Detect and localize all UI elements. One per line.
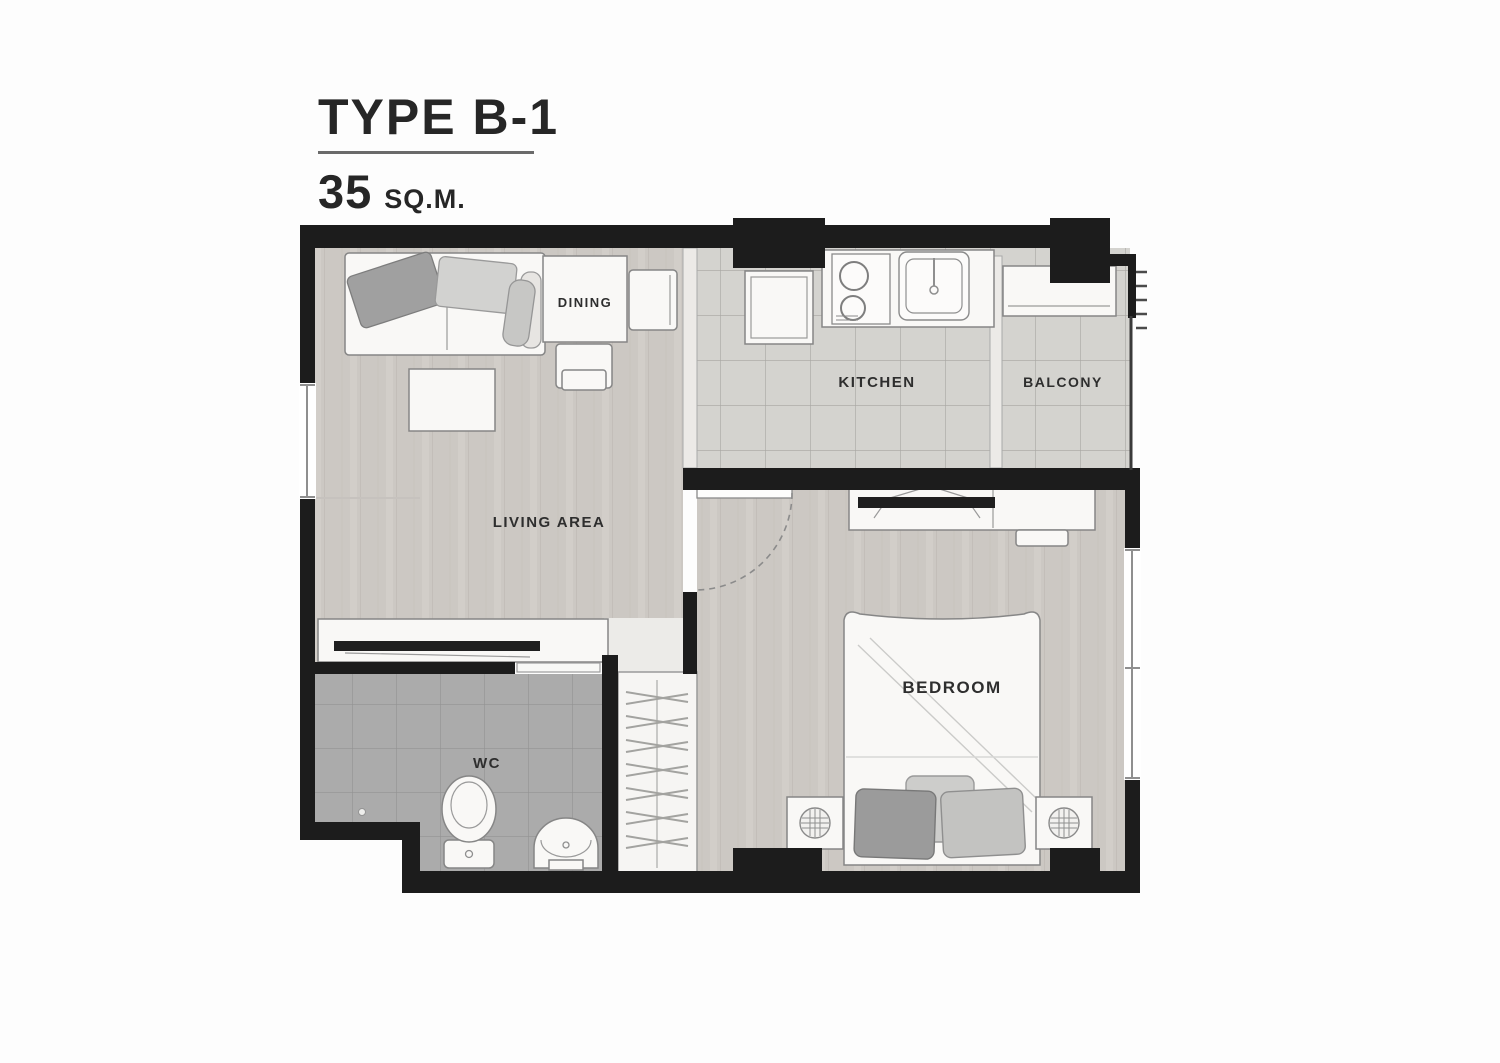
top-column-2 (1050, 218, 1110, 283)
nightstand-left (787, 797, 843, 849)
sofa (345, 251, 545, 355)
floor-plan-page: TYPE B-1 35 SQ.M. (0, 0, 1500, 1063)
sofa-pillow-light (435, 256, 518, 314)
lamp-icon (1049, 808, 1079, 838)
stove-icon (832, 254, 890, 324)
wc-door (517, 663, 600, 672)
wc-label: WC (473, 755, 501, 772)
plan-title-block: TYPE B-1 35 SQ.M. (318, 92, 559, 219)
coffee-table (409, 369, 495, 431)
left-wall-upper (300, 225, 315, 385)
plan-area: 35 SQ.M. (318, 164, 559, 219)
dining-chair-bottom (556, 344, 612, 390)
balcony-rail-post (1128, 254, 1136, 318)
right-wall-lower (1125, 778, 1140, 893)
bedroom-console-drawer (1016, 530, 1068, 546)
lamp-icon (800, 808, 830, 838)
top-wall (300, 225, 1110, 248)
balcony-label: BALCONY (1023, 374, 1103, 390)
dining-label: DINING (558, 295, 613, 310)
living-tv (334, 641, 540, 651)
bed (844, 612, 1040, 865)
closet-wc-wall (602, 655, 618, 893)
kitchen-label: KITCHEN (838, 374, 915, 391)
living-tv-console (318, 619, 608, 662)
bottom-column-2 (1050, 848, 1100, 871)
dining-chair-right (629, 270, 677, 330)
basin-icon (534, 818, 598, 870)
nightstand-right (1036, 797, 1092, 849)
bedroom-window (1124, 548, 1141, 780)
bottom-column-1 (733, 848, 822, 871)
plan-type-title: TYPE B-1 (318, 92, 559, 142)
kitchen-counter (822, 250, 994, 327)
bedroom-label: BEDROOM (902, 678, 1001, 697)
area-unit: SQ.M. (384, 184, 466, 215)
title-underline (318, 151, 534, 154)
bed-pillow-left (854, 789, 936, 860)
living-kitchen-divider (683, 248, 697, 468)
floor-plan-drawing: DINING KITCHEN BALCONY LIVING AREA BEDRO… (0, 0, 1500, 1063)
bedroom-jamb-wall (683, 592, 697, 674)
kitchen-cabinet (745, 271, 813, 344)
sink-icon (899, 252, 969, 320)
bedroom-tv (858, 497, 995, 508)
living-wc-wall (300, 662, 515, 674)
right-wall-upper (1125, 482, 1140, 550)
bed-pillow-right (940, 788, 1025, 858)
left-window (299, 383, 316, 499)
toilet-icon (442, 776, 496, 868)
balcony-louver-icon (1136, 272, 1147, 328)
wardrobe (618, 672, 697, 875)
floor-drain-icon (359, 809, 366, 816)
living-area-label: LIVING AREA (493, 514, 606, 531)
kitchen-bedroom-wall (683, 468, 1140, 490)
top-column-1 (733, 218, 825, 268)
area-value: 35 (318, 164, 372, 219)
bottom-wall (402, 871, 1140, 893)
